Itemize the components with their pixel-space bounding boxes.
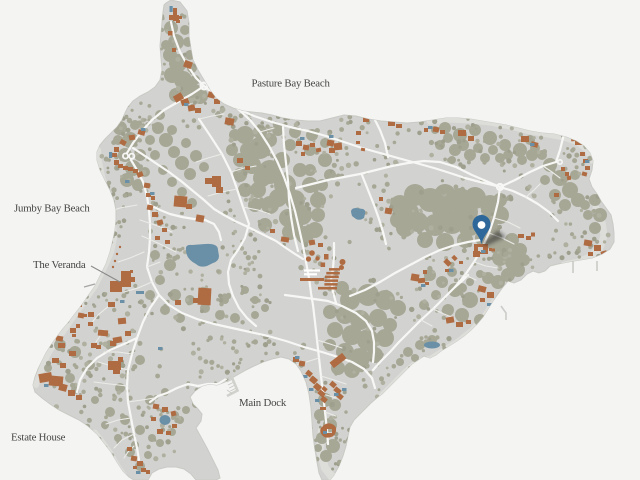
svg-text:Estate House: Estate House: [11, 432, 66, 444]
svg-text:The Veranda: The Veranda: [33, 259, 86, 271]
svg-text:Pasture Bay Beach: Pasture Bay Beach: [252, 78, 331, 90]
svg-text:Jumby Bay Beach: Jumby Bay Beach: [14, 203, 90, 215]
svg-text:Main Dock: Main Dock: [239, 397, 287, 409]
